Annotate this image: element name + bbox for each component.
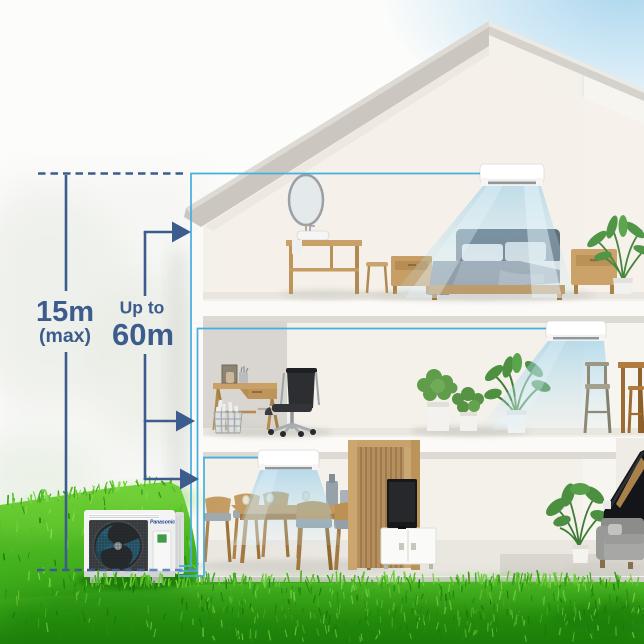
svg-text:60m: 60m [112,317,174,352]
svg-text:(max): (max) [39,325,91,347]
svg-text:15m: 15m [36,296,94,328]
svg-text:Panasonic: Panasonic [150,520,175,526]
svg-text:Up to: Up to [120,298,165,318]
